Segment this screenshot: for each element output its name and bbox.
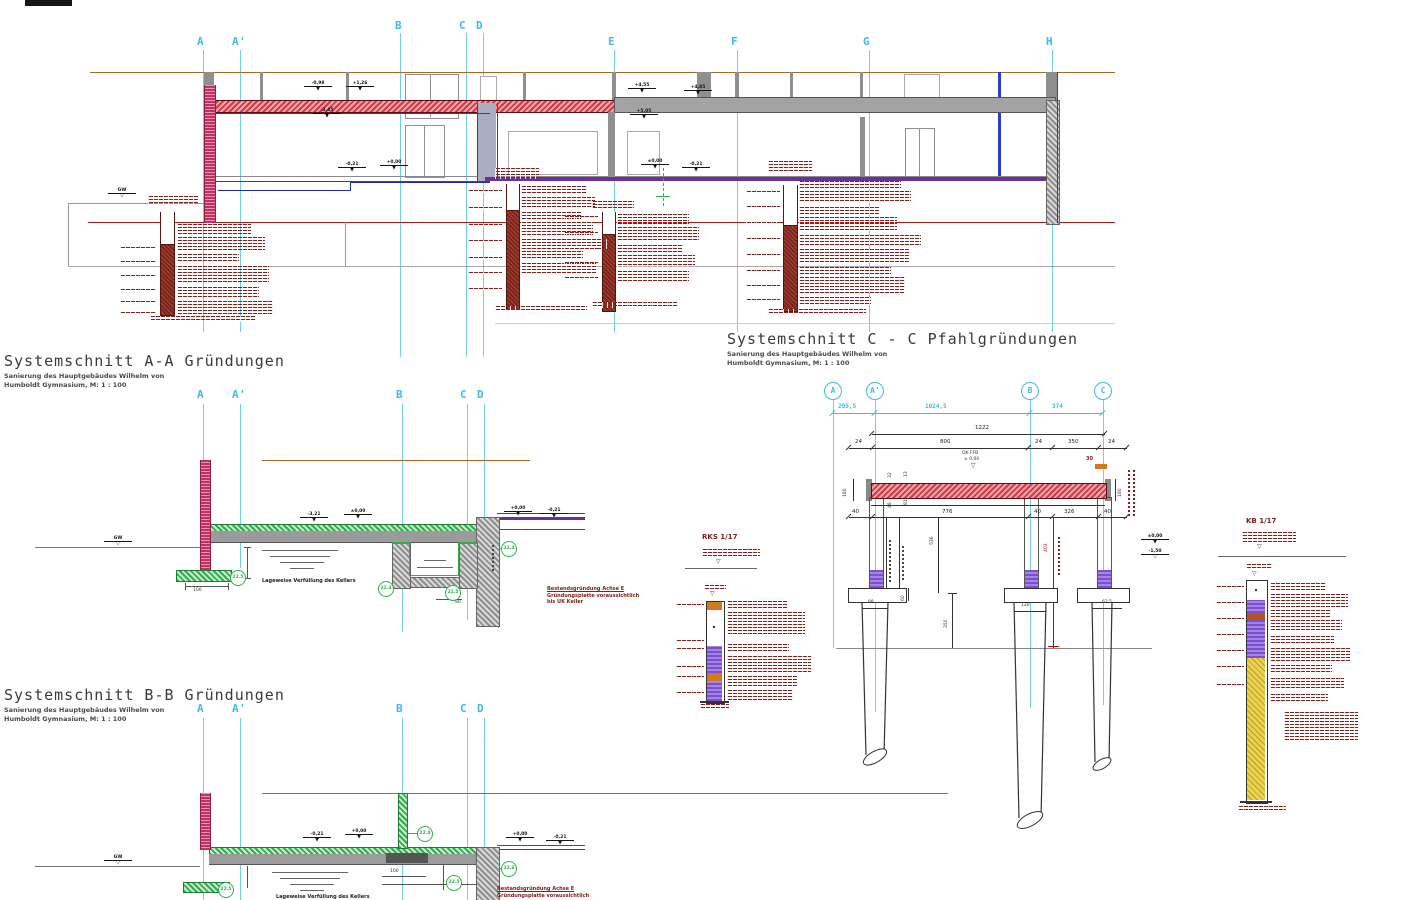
annotation-text-block — [592, 302, 678, 308]
water-line — [262, 550, 338, 551]
annotation-text-block — [1058, 535, 1060, 575]
level-triangle-icon: ▼ — [313, 114, 341, 118]
annotation-text-block — [468, 288, 502, 291]
ground-line — [685, 568, 757, 569]
level-triangle-icon: ▽ — [104, 861, 132, 865]
axis-bubble: A' — [866, 382, 884, 400]
detail-circle: 22.5 — [230, 570, 246, 586]
axis-bubble: C — [1094, 382, 1112, 400]
level-marker: -1,50▽ — [1141, 549, 1169, 559]
annotation-text-block — [120, 247, 156, 250]
annotation-text-block — [468, 224, 502, 227]
level-marker: -0,21▼ — [682, 162, 710, 172]
annotation-text-block — [727, 644, 789, 652]
dim-label: 800 — [940, 439, 951, 445]
soil-layer — [602, 212, 616, 234]
level-triangle-icon: ▼ — [346, 87, 374, 91]
grid-line — [240, 404, 241, 568]
wall — [860, 117, 865, 176]
soil-layer — [160, 212, 175, 244]
grid-label-b: B — [395, 19, 402, 32]
dim-label: 88 — [868, 600, 874, 605]
grid-line — [833, 400, 834, 648]
section-b-subtitle: Humboldt Gymnasium, M: 1 : 100 — [4, 715, 126, 723]
level-marker: -0,21▼ — [540, 508, 568, 518]
annotation-text-block — [468, 257, 502, 260]
soil-layer — [783, 185, 798, 225]
dim-label: 40 — [1104, 509, 1111, 515]
annotation-text-block — [1216, 650, 1244, 653]
column-base — [1098, 570, 1111, 588]
fill-note: Lageweise Verfüllung des Kellers — [262, 578, 356, 584]
level-triangle-icon: ▼ — [380, 166, 408, 170]
borehole-base — [700, 701, 729, 703]
fill-note: Lageweise Verfüllung des Kellers — [276, 894, 370, 900]
grid-label-a: A — [197, 388, 204, 401]
annotation-text-block — [1284, 712, 1358, 742]
water-line — [280, 878, 340, 879]
dim-label: 48 — [888, 502, 893, 508]
soil-layer — [1247, 620, 1265, 658]
annotation-text-block — [704, 585, 726, 589]
soil-layer — [707, 673, 722, 681]
column-base — [1025, 570, 1038, 588]
level-marker: -3,21▼ — [300, 512, 328, 522]
annotation-text-block — [564, 248, 598, 251]
green-line — [458, 542, 459, 576]
green-line — [409, 575, 459, 576]
grid-label-a1: A' — [232, 388, 246, 401]
soil-layer — [1247, 658, 1265, 800]
level-marker: ±0,00▼ — [1141, 534, 1169, 544]
grid-label-a: A — [197, 702, 204, 715]
pile-cap — [1004, 588, 1058, 603]
annotation-text-block — [120, 275, 156, 278]
annotation-text-block — [177, 301, 273, 314]
level-triangle-icon: ▼ — [628, 89, 656, 93]
detail-circle: 22.5 — [446, 875, 462, 891]
wall — [735, 72, 739, 100]
door — [405, 125, 445, 178]
level-marker: +4,85▼ — [684, 85, 712, 95]
annotation-text-block — [746, 254, 780, 257]
water-line — [272, 872, 348, 873]
dim-label: 60 — [901, 595, 906, 601]
annotation-text-block — [521, 251, 583, 259]
annotation-text-block — [746, 270, 780, 273]
annotation-text-block — [1270, 636, 1334, 645]
dim-label: 374 — [1052, 403, 1063, 410]
wall-axis-a — [200, 460, 211, 570]
annotation-text-block — [177, 237, 265, 251]
grid-label-a1: A' — [232, 35, 246, 48]
annotation-text-block — [676, 676, 704, 679]
level-marker: -0,21▼ — [338, 162, 366, 172]
annotation-text-block — [676, 666, 704, 669]
water-line — [280, 562, 324, 563]
red-line — [497, 845, 585, 846]
wall-axis-a — [200, 793, 211, 850]
groundwater-marker: GW▽ — [104, 855, 132, 865]
level-marker: -0,98▼ — [304, 81, 332, 91]
floor-slab-gray — [209, 854, 477, 865]
annotation-text-block — [1216, 618, 1244, 621]
pile-cap — [848, 588, 907, 603]
annotation-text-block — [1270, 694, 1328, 702]
dim-line — [185, 586, 228, 587]
annotation-text-block — [702, 549, 760, 558]
annotation-text-block — [889, 538, 891, 582]
water-line — [290, 568, 314, 569]
dim-label: 536 — [930, 536, 935, 545]
level-triangle-icon: ▽ — [108, 194, 136, 198]
level-marker: -0,21▼ — [303, 832, 331, 842]
dim-label: 326 — [1064, 509, 1075, 515]
annotation-text-block — [521, 186, 587, 194]
annotation-text-block — [768, 309, 866, 315]
groundwater-marker: GW▽ — [104, 536, 132, 546]
annotation-text-block — [746, 191, 780, 194]
contour-line — [345, 222, 346, 266]
dim-label: 180 — [1118, 488, 1123, 497]
blue-line — [204, 113, 490, 114]
floor-slab-purple — [485, 177, 1054, 181]
level-marker: +5,05▼ — [630, 109, 658, 119]
existing-slab — [614, 97, 1056, 113]
annotation-text-block — [1238, 806, 1286, 811]
annotation-text-block — [727, 656, 811, 672]
annotation-text-block — [120, 312, 156, 315]
annotation-text-block — [799, 217, 897, 231]
slab-thickening — [386, 853, 428, 863]
annotation-text-block — [1270, 678, 1344, 690]
borehole-label-kb: KB 1/17 — [1246, 518, 1276, 525]
annotation-text-block — [564, 262, 598, 265]
soil-column — [160, 244, 175, 316]
annotation-text-block — [468, 190, 502, 193]
annotation-text-block — [1128, 468, 1130, 516]
annotation-text-block — [799, 207, 879, 215]
annotation-text-block — [727, 601, 787, 609]
dim-line — [1115, 479, 1116, 501]
grid-label-d: D — [476, 19, 483, 32]
existing-foundation-note: Bestandsgründung Achse E — [497, 886, 574, 893]
water-line — [290, 884, 334, 885]
navy-line — [350, 182, 351, 191]
level-marker: -0,21▼ — [546, 835, 574, 845]
detail-circle: 22.5 — [445, 585, 461, 601]
ground-line — [35, 547, 200, 548]
soil-layer — [707, 602, 722, 610]
annotation-text-block — [521, 197, 595, 209]
dim-line — [938, 517, 939, 593]
annotation-text-block — [746, 299, 780, 302]
grid-label-g: G — [863, 35, 870, 48]
soil-column — [506, 210, 520, 310]
dim-label: 81 — [904, 499, 909, 505]
grid-label-h: H — [1046, 35, 1053, 48]
annotation-text-block — [1270, 620, 1342, 632]
annotation-text-block — [177, 287, 259, 299]
annotation-text-block — [746, 285, 780, 288]
annotation-text-block — [727, 676, 797, 686]
annotation-text-block — [676, 648, 704, 651]
annotation-text-block — [150, 316, 256, 322]
wall-axis-b — [398, 793, 408, 849]
grid-line — [402, 404, 403, 632]
blue-line — [477, 103, 478, 181]
dim-label: 40 — [852, 509, 859, 515]
dim-label: 403 — [1044, 543, 1049, 552]
grid-label-e: E — [608, 35, 615, 48]
step-line — [424, 560, 446, 561]
annotation-text-block — [676, 640, 704, 643]
dim-label: 80 — [455, 600, 461, 605]
level-triangle-icon: ▼ — [506, 838, 534, 842]
annotation-text-block — [120, 301, 156, 304]
annotation-text-block — [592, 201, 634, 210]
wall-cd — [478, 103, 496, 181]
annotation-text-block — [799, 191, 911, 203]
water-line — [300, 890, 324, 891]
annotation-text-block — [799, 235, 921, 245]
dim-line — [382, 884, 488, 885]
annotation-text-block — [768, 161, 812, 172]
annotation-text-block — [799, 181, 901, 189]
annotation-text-block — [495, 306, 587, 312]
cad-drawing-canvas: A A' B C D E F G H — [0, 0, 1410, 900]
level-triangle-icon: ▼ — [641, 165, 669, 169]
dim-label: 13 — [904, 471, 909, 477]
wall — [860, 72, 863, 100]
soil-layer — [707, 681, 722, 701]
section-b-subtitle: Sanierung des Hauptgebäudes Wilhelm von — [4, 706, 164, 714]
annotation-text-block — [617, 255, 695, 267]
dim-label: 24 — [855, 439, 862, 445]
pile-shafts — [840, 595, 1140, 845]
navy-line — [218, 190, 350, 191]
annotation-text-block — [617, 271, 689, 281]
wall — [790, 72, 793, 100]
grid-label-c: C — [459, 19, 466, 32]
grid-label-b: B — [396, 388, 403, 401]
grid-line — [467, 718, 468, 900]
level-triangle-icon: ▼ — [345, 835, 373, 839]
dim-label: 40 — [1034, 509, 1041, 515]
annotation-text-block — [495, 168, 539, 179]
section-c-subtitle: Humboldt Gymnasium, M: 1 : 100 — [727, 359, 849, 367]
section-a-subtitle: Sanierung des Hauptgebäudes Wilhelm von — [4, 372, 164, 380]
soil-dot — [1255, 589, 1257, 591]
dim-tick — [1124, 445, 1130, 451]
annotation-text-block — [799, 249, 909, 263]
dim-line — [247, 547, 248, 578]
grid-label-d: D — [477, 388, 484, 401]
grid-label-a1: A' — [232, 702, 246, 715]
grid-label-d: D — [477, 702, 484, 715]
level-triangle-icon: ▼ — [630, 115, 658, 119]
soil-layer — [707, 646, 722, 673]
red-line — [497, 529, 585, 530]
terrain-line — [262, 460, 530, 461]
dim-label: 776 — [942, 509, 953, 515]
dim-line — [247, 866, 248, 888]
new-slab — [204, 100, 617, 113]
grid-line — [240, 718, 241, 900]
beam-underside — [871, 505, 1105, 506]
floor-slab-gray — [209, 531, 477, 543]
level-triangle-icon: ▽ — [710, 590, 715, 597]
annotation-text-block — [617, 214, 689, 224]
annotation-text-block — [799, 297, 871, 305]
soil-layer — [506, 184, 520, 210]
level-marker: +0,00▼ — [506, 832, 534, 842]
soil-column — [783, 225, 798, 312]
detail-circle: 22.6 — [501, 861, 517, 877]
level-triangle-icon: ▼ — [546, 841, 574, 845]
annotation-text-block — [1270, 665, 1332, 674]
detail-circle: 22.4 — [501, 541, 517, 557]
level-triangle-icon: ▼ — [303, 838, 331, 842]
top-left-black-bar — [25, 0, 72, 6]
level-triangle-icon: ▼ — [504, 512, 532, 516]
annotation-text-block — [177, 266, 269, 284]
annotation-text-block — [492, 545, 494, 571]
dim-tick — [228, 583, 229, 590]
annotation-text-block — [1270, 594, 1348, 607]
dim-label: 350 — [944, 619, 949, 628]
dim-label: 120 — [1021, 603, 1030, 608]
contour-line — [68, 203, 69, 266]
dim-tick — [244, 547, 251, 548]
dim-label: 30 — [1086, 456, 1093, 463]
annotation-text-block — [1216, 634, 1244, 637]
level-triangle-icon: ▼ — [344, 515, 372, 519]
section-a-subtitle: Humboldt Gymnasium, M: 1 : 100 — [4, 381, 126, 389]
level-triangle-icon: ▽ — [1141, 555, 1169, 559]
level-triangle-icon: ▼ — [300, 518, 328, 522]
level-marker: +0,00▼ — [345, 829, 373, 839]
grid-label-b: B — [396, 702, 403, 715]
soil-layer — [1247, 613, 1265, 620]
navy-line — [350, 182, 490, 183]
annotation-text-block — [676, 692, 704, 695]
level-triangle-icon: ▼ — [682, 168, 710, 172]
window — [480, 76, 497, 102]
grid-line — [466, 33, 467, 357]
wall-blue — [998, 72, 1001, 180]
terrain-line — [90, 72, 1115, 73]
grid-label-c: C — [460, 388, 467, 401]
level-triangle-icon: ▽ — [716, 558, 721, 565]
annotation-text-block — [177, 254, 239, 262]
dim-line — [899, 517, 900, 593]
water-line — [270, 556, 330, 557]
detail-circle: 22.4 — [378, 581, 394, 597]
dim-label: 180 — [843, 488, 848, 497]
grid-label-c: C — [460, 702, 467, 715]
gray-ref-line — [495, 323, 1115, 324]
annotation-text-block — [468, 207, 502, 210]
dim-tick — [185, 583, 186, 590]
annotation-text-block — [799, 267, 891, 275]
section-a-title: Systemschnitt A-A Gründungen — [4, 352, 285, 370]
pile-cap-beam — [871, 483, 1107, 499]
annotation-text-block — [746, 238, 780, 241]
grid-label-a: A — [197, 35, 204, 48]
existing-foundation-note: Gründungsplatte voraussichtlich — [497, 893, 589, 900]
green-line — [409, 542, 410, 576]
blue-line — [1057, 72, 1058, 223]
ground-line — [35, 866, 200, 867]
level-marker: -3,45▼ — [313, 108, 341, 118]
dim-line — [872, 434, 1105, 435]
annotation-text-block — [1242, 532, 1296, 542]
dim-label: 100 — [390, 869, 399, 874]
level-triangle-icon: ▼ — [304, 87, 332, 91]
dim-label: 1222 — [975, 425, 989, 431]
borehole-base — [1240, 801, 1272, 803]
annotation-text-block — [700, 704, 729, 709]
dim-label: 1024,5 — [925, 403, 947, 410]
level-triangle-icon: ▼ — [540, 514, 568, 518]
annotation-text-block — [1216, 666, 1244, 669]
wall-e — [608, 112, 615, 181]
level-marker: +0,00▼ — [380, 160, 408, 170]
annotation-text-block — [1216, 586, 1244, 589]
level-triangle-icon: ▼ — [684, 91, 712, 95]
blue-line — [215, 110, 216, 222]
annotation-text-block — [727, 612, 805, 636]
annotation-text-block — [1133, 468, 1135, 516]
green-dashed-line — [663, 168, 664, 206]
level-marker: ±0,00▼ — [344, 509, 372, 519]
existing-foundation-note: Bestandsgründung Achse E — [547, 586, 624, 593]
detail-circle: 22.4 — [417, 826, 433, 842]
borehole-label-rks: RKS 1/17 — [702, 534, 737, 541]
dim-label: 205,5 — [838, 403, 856, 410]
step-line — [417, 567, 453, 568]
annotation-text-block — [676, 604, 704, 607]
dim-label: 24 — [1035, 439, 1042, 445]
annotation-text-block — [120, 289, 156, 292]
existing-foundation-note: bis UK Keller — [547, 599, 583, 606]
level-triangle-icon: ▽ — [104, 542, 132, 546]
dim-line — [849, 448, 1127, 449]
soil-layer — [1247, 600, 1265, 613]
dim-label: 350 — [1068, 439, 1079, 445]
ground-line — [1218, 556, 1346, 557]
dim-label: 62,5 — [1102, 600, 1112, 605]
level-marker: +1,26▼ — [346, 81, 374, 91]
annotation-text-block — [1246, 564, 1272, 568]
door-mullion — [919, 128, 920, 176]
annotation-text-block — [902, 546, 904, 580]
annotation-text-block — [746, 222, 780, 225]
annotation-text-block — [1270, 610, 1330, 618]
footing — [176, 570, 232, 582]
groundwater-marker: GW▽ — [108, 188, 136, 198]
annotation-text-block — [727, 690, 793, 700]
door-mullion — [424, 125, 425, 176]
existing-wall — [476, 517, 500, 627]
annotation-text-block — [1216, 602, 1244, 605]
wall — [523, 72, 526, 100]
wall — [612, 72, 616, 100]
annotation-text-block — [468, 272, 502, 275]
annotation-text-block — [564, 232, 598, 235]
grid-label-f: F — [731, 35, 738, 48]
